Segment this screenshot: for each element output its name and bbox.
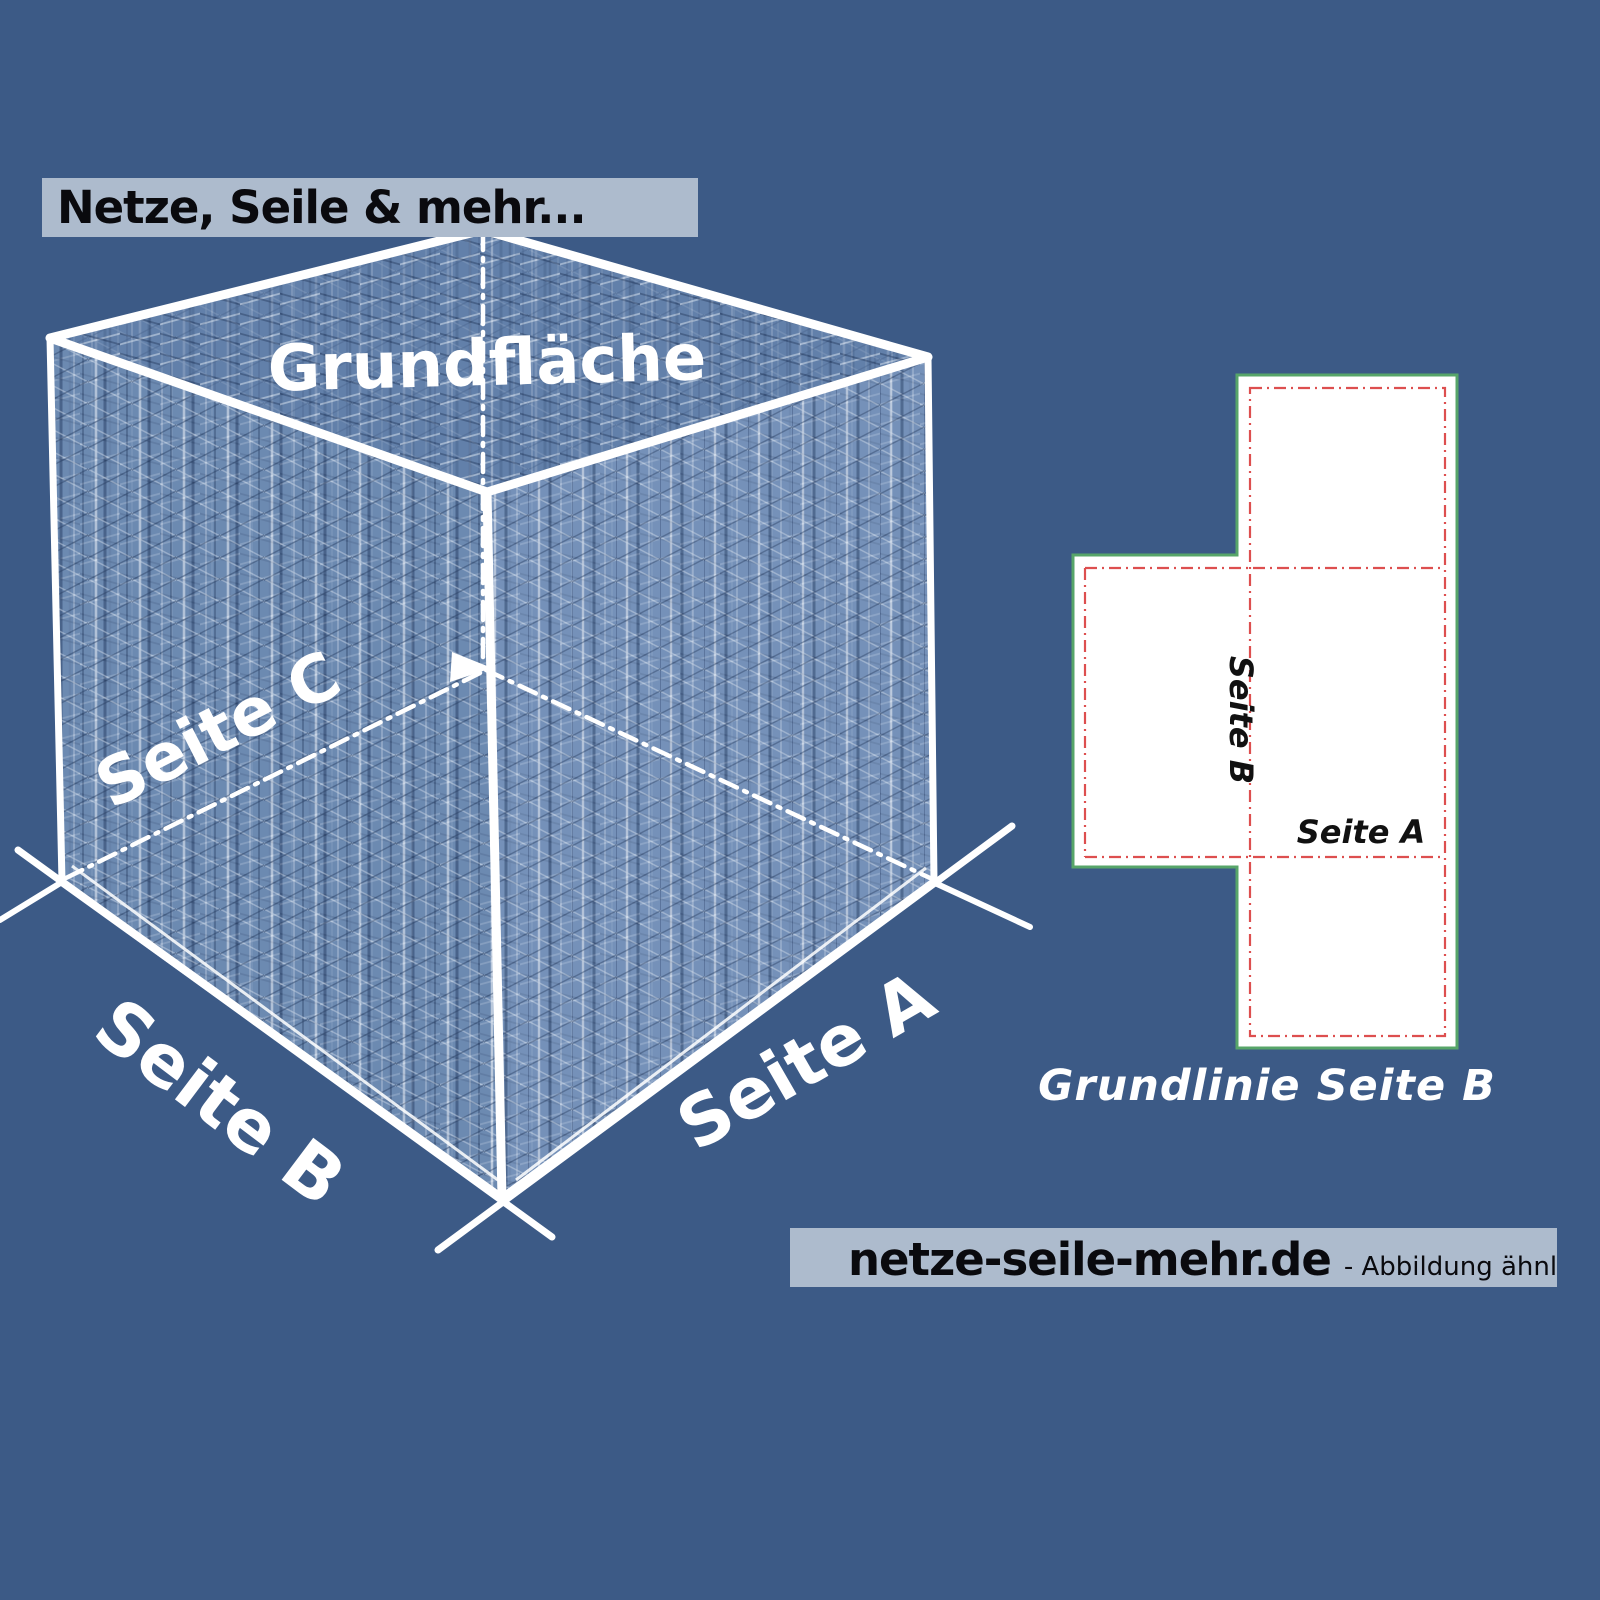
net-outline — [1073, 375, 1457, 1048]
axis-tick-right — [935, 883, 1030, 927]
footer-banner: netze-seile-mehr.de - Abbildung ähnlich — [790, 1228, 1557, 1287]
net-diagram — [1073, 375, 1457, 1048]
cube-and-net-graphic — [0, 0, 1600, 1600]
net-side-b-label: Seite B — [1222, 656, 1260, 784]
cube-top-face-label: Grundfläche — [267, 321, 707, 406]
axis-tick-left — [0, 882, 62, 920]
footer-site-name: netze-seile-mehr.de — [848, 1237, 1331, 1282]
product-image: Netze, Seile & mehr... Grundfläche Seite… — [0, 0, 1600, 1600]
footer-note: - Abbildung ähnlich — [1344, 1253, 1557, 1282]
net-caption: Grundlinie Seite B — [1038, 1061, 1496, 1111]
header-banner: Netze, Seile & mehr... — [42, 178, 698, 237]
header-banner-text: Netze, Seile & mehr... — [57, 181, 586, 234]
net-side-a-label: Seite A — [1297, 813, 1426, 851]
